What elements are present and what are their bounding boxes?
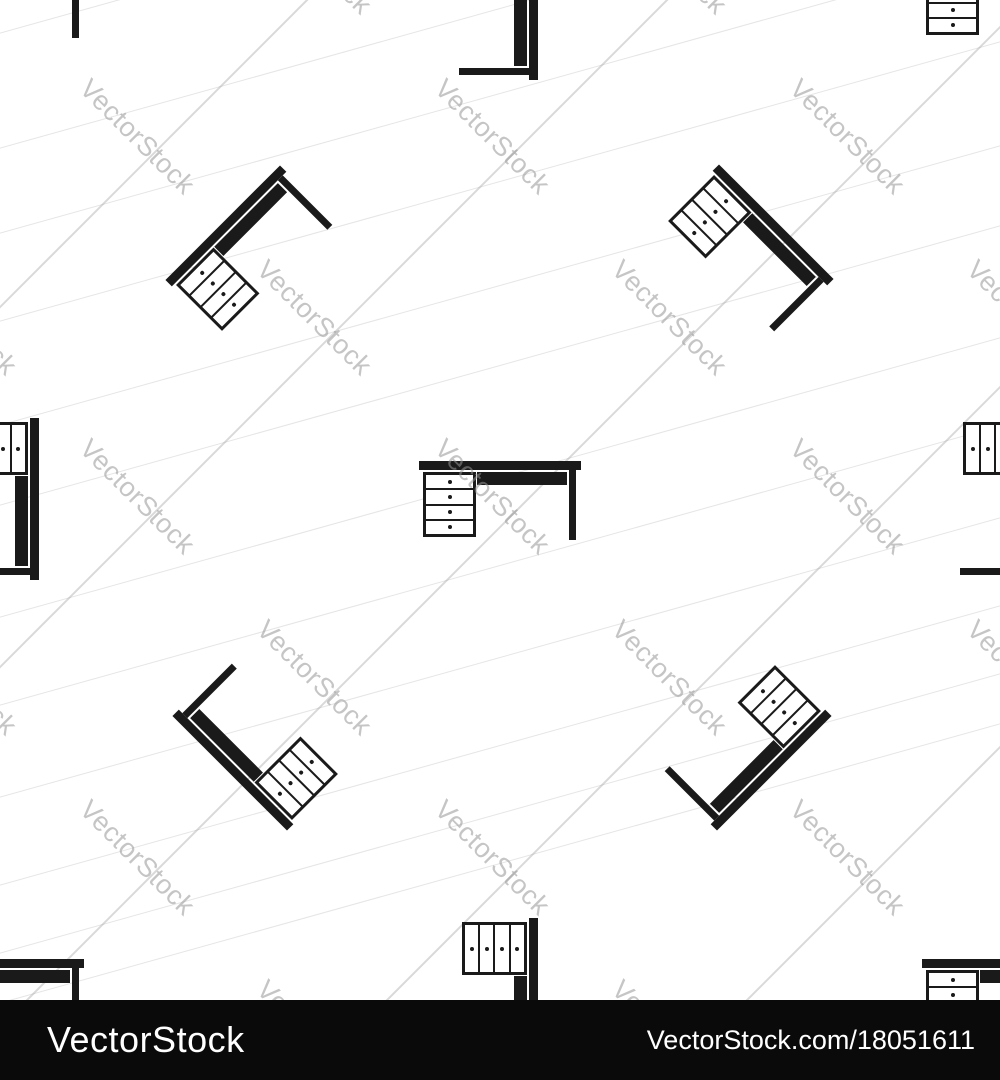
watermark-text: VectorStock (428, 73, 556, 201)
drawer-knob-icon (691, 230, 697, 236)
drawer-knob-icon (723, 198, 729, 204)
desk-tabletop (922, 959, 1000, 968)
desk-icon-top-center (458, 0, 538, 80)
desk-drawer (929, 0, 976, 2)
drawer-knob-icon (210, 281, 216, 287)
desk-icon-right-edge (959, 418, 1000, 580)
drawer-knob-icon (760, 688, 766, 694)
desk-leg (72, 968, 79, 1000)
drawer-knob-icon (310, 759, 316, 765)
drawer-knob-icon (971, 447, 975, 451)
desk-leg (569, 470, 576, 540)
drawer-knob-icon (951, 23, 955, 27)
drawer-knob-icon (470, 947, 474, 951)
watermark-text: VectorStock (605, 974, 733, 1000)
seamless-desk-pattern: VectorStockVectorStockVectorStockVectorS… (0, 0, 1000, 1000)
drawer-knob-icon (782, 709, 788, 715)
watermark-text: VectorStock (428, 794, 556, 922)
desk-drawer-unit (926, 970, 979, 1000)
watermark-text: VectorStock (783, 73, 911, 201)
desk-drawer (12, 425, 25, 472)
desk-drawer (0, 425, 10, 472)
watermark-banner: VectorStock VectorStock.com/18051611 (0, 1000, 1000, 1080)
drawer-knob-icon (448, 525, 452, 529)
watermark-diagonal-line (165, 166, 1000, 1000)
desk-modesty-panel (477, 472, 567, 485)
desk-icon-left-edge (0, 418, 39, 580)
desk-drawer (511, 925, 524, 972)
watermark-text: VectorStock (783, 433, 911, 561)
drawer-knob-icon (793, 720, 799, 726)
drawer-knob-icon (199, 270, 205, 276)
desk-icon-top-right-corner (922, 0, 1000, 39)
drawer-knob-icon (220, 292, 226, 298)
desk-drawer (929, 988, 976, 1000)
drawer-knob-icon (951, 8, 955, 12)
stock-image-preview: { "canvas": { "width": 1000, "height": 1… (0, 0, 1000, 1080)
desk-icon-bottom-right-corner (922, 959, 1000, 1000)
drawer-knob-icon (1, 447, 5, 451)
vectorstock-logo: VectorStock (47, 1019, 245, 1061)
desk-drawer (929, 19, 976, 32)
drawer-knob-icon (702, 219, 708, 225)
desk-drawer (966, 425, 979, 472)
desk-drawer-unit (423, 472, 476, 537)
desk-tabletop (419, 461, 581, 470)
desk-leg (0, 568, 30, 575)
drawer-knob-icon (712, 209, 718, 215)
drawer-knob-icon (771, 699, 777, 705)
desk-drawer (929, 4, 976, 17)
desk-drawer-unit (0, 422, 28, 475)
drawer-knob-icon (16, 447, 20, 451)
desk-leg (769, 277, 823, 331)
watermark-text: VectorStock (250, 0, 378, 21)
desk-drawer (426, 521, 473, 534)
desk-drawer (929, 973, 976, 986)
image-url-text: VectorStock.com/18051611 (647, 1025, 975, 1056)
desk-tabletop (529, 918, 538, 1000)
desk-drawer (997, 425, 1000, 472)
watermark-text: VectorStock (960, 254, 1000, 382)
drawer-knob-icon (485, 947, 489, 951)
desk-leg (72, 0, 79, 38)
desk-leg (278, 175, 332, 229)
desk-drawer (981, 425, 994, 472)
drawer-knob-icon (986, 447, 990, 451)
drawer-knob-icon (500, 947, 504, 951)
watermark-text: VectorStock (250, 974, 378, 1000)
desk-drawer (426, 475, 473, 488)
watermark-text: VectorStock (783, 794, 911, 922)
desk-icon-upper-left (165, 165, 336, 336)
watermark-shallow-line (0, 269, 1000, 862)
desk-drawer (465, 925, 478, 972)
desk-drawer-unit (963, 422, 1000, 475)
desk-leg (960, 568, 1000, 575)
desk-icon-lower-right (660, 659, 831, 830)
drawer-knob-icon (515, 947, 519, 951)
desk-icon-center (419, 461, 581, 541)
drawer-knob-icon (951, 978, 955, 982)
drawer-knob-icon (277, 792, 283, 798)
drawer-knob-icon (231, 303, 237, 309)
desk-modesty-panel (514, 0, 527, 66)
desk-modesty-panel (980, 970, 1000, 983)
desk-icon-top-left-corner (0, 0, 84, 39)
desk-tabletop (30, 418, 39, 580)
desk-drawer (480, 925, 493, 972)
desk-tabletop (0, 959, 84, 968)
watermark-shallow-line (0, 69, 1000, 662)
desk-drawer-unit (926, 0, 979, 35)
drawer-knob-icon (448, 480, 452, 484)
desk-modesty-panel (514, 976, 527, 1000)
desk-drawer (496, 925, 509, 972)
watermark-text: VectorStock (605, 0, 733, 21)
desk-drawer (426, 506, 473, 519)
drawer-knob-icon (288, 781, 294, 787)
drawer-knob-icon (448, 495, 452, 499)
desk-leg (459, 68, 529, 75)
desk-modesty-panel (710, 740, 783, 813)
desk-drawer-unit (462, 922, 527, 975)
desk-icon-upper-right (662, 164, 833, 335)
watermark-text: VectorStock (73, 433, 201, 561)
desk-icon-lower-left (172, 659, 343, 830)
desk-icon-bottom-left-corner (0, 959, 84, 1000)
desk-modesty-panel (0, 970, 70, 983)
desk-tabletop (529, 0, 538, 80)
drawer-knob-icon (448, 510, 452, 514)
watermark-text: VectorStock (0, 614, 23, 742)
desk-drawer (426, 490, 473, 503)
drawer-knob-icon (951, 993, 955, 997)
desk-modesty-panel (15, 476, 28, 566)
desk-icon-bottom-center (458, 918, 538, 1000)
drawer-knob-icon (299, 770, 305, 776)
desk-leg (665, 766, 719, 820)
desk-leg (182, 664, 236, 718)
watermark-shallow-line (0, 361, 1000, 954)
